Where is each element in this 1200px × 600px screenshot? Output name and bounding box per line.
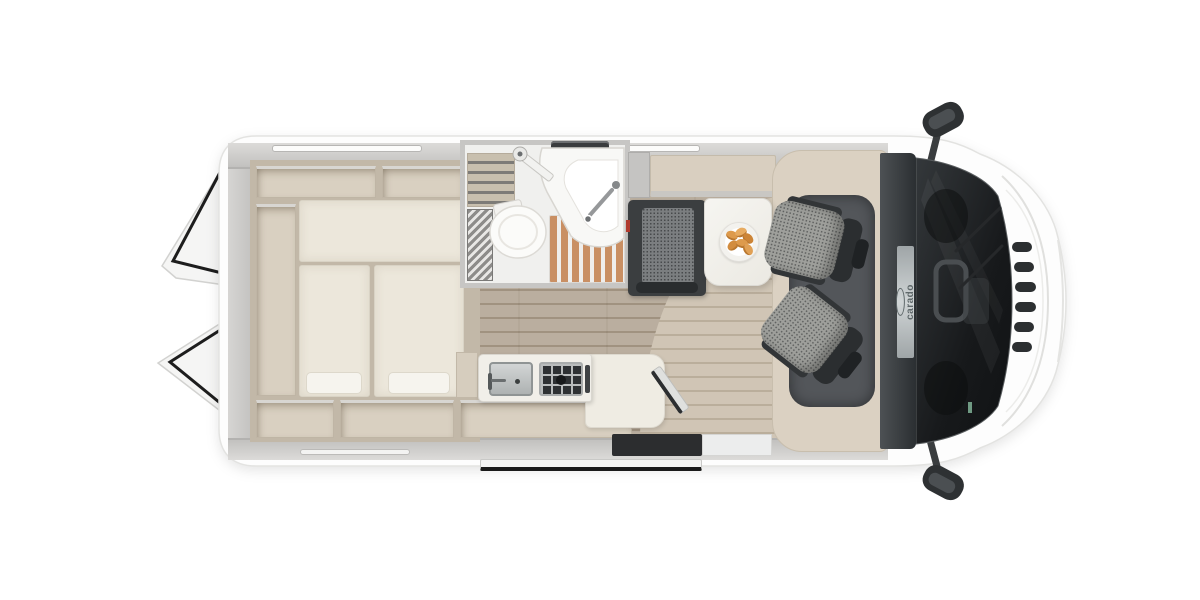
hob-burner [556, 375, 566, 385]
sink-drain [585, 216, 592, 223]
brand-logo: carado [896, 284, 916, 320]
croissant [741, 242, 755, 257]
brand-plaque: carado [897, 246, 914, 358]
overhead-locker [650, 155, 776, 197]
window-strip [300, 449, 410, 455]
entry-step-well [702, 434, 772, 456]
kitchen-counter [478, 354, 592, 402]
rear-wall [228, 143, 252, 460]
storage-compartment [256, 204, 296, 396]
toilet [490, 199, 546, 258]
plate-of-croissants [719, 222, 759, 262]
logo-text: carado [906, 284, 916, 320]
corner-sink [540, 148, 624, 247]
storage-compartment [256, 166, 376, 198]
sliding-door-rail [480, 459, 702, 471]
faucet-icon [491, 379, 506, 382]
window-strip [272, 145, 422, 152]
kitchen-worktop-extension [585, 354, 665, 428]
bathroom [460, 140, 630, 288]
center-console [963, 278, 989, 324]
pillow [388, 372, 450, 394]
wardrobe-cabinet [628, 152, 650, 198]
inspection-sticker [968, 402, 972, 413]
storage-compartment [256, 400, 334, 438]
bathroom-fixtures [460, 140, 630, 288]
dinette-bench [628, 200, 706, 296]
bench-cushion [642, 208, 694, 284]
hob-control-panel [585, 365, 590, 393]
seatbelt-accent [626, 220, 630, 232]
two-burner-hob [539, 362, 583, 396]
storage-compartment [340, 400, 454, 438]
pillow [306, 372, 362, 394]
logo-swoosh-icon [896, 288, 905, 316]
kitchen-side-cabinet [456, 352, 478, 398]
storage-compartment [382, 166, 462, 198]
camper-floorplan-render: carado [0, 0, 1200, 600]
sink-drain [515, 379, 520, 384]
kitchen-sink [489, 362, 533, 396]
dashboard-shape [924, 361, 968, 415]
bed-mattress-head [299, 200, 467, 262]
windshield [916, 158, 1012, 444]
dinette-table [704, 198, 772, 286]
bench-armrest [636, 282, 698, 293]
dashboard-shape [924, 189, 968, 243]
entry-threshold-step [612, 434, 702, 456]
